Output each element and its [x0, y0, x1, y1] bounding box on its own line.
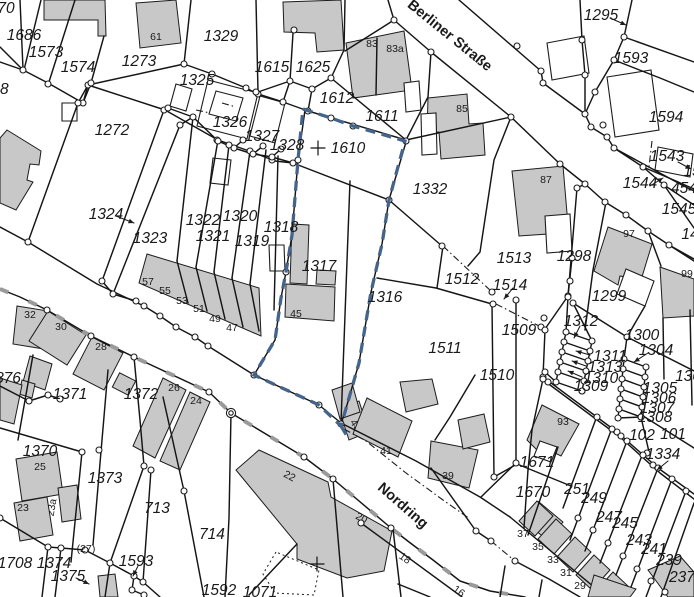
- svg-text:1708: 1708: [0, 555, 33, 572]
- svg-text:61: 61: [150, 31, 162, 43]
- svg-text:1686: 1686: [7, 27, 42, 44]
- svg-text:47: 47: [226, 322, 238, 334]
- svg-text:1334: 1334: [646, 446, 681, 463]
- svg-text:48: 48: [0, 81, 9, 98]
- svg-text:55: 55: [159, 285, 171, 297]
- svg-text:1324: 1324: [89, 206, 124, 223]
- svg-text:1323: 1323: [133, 230, 168, 247]
- svg-text:1295: 1295: [584, 7, 619, 24]
- svg-text:1592: 1592: [202, 582, 237, 597]
- svg-text:26: 26: [168, 382, 180, 394]
- svg-text:101: 101: [660, 426, 686, 443]
- svg-text:1574: 1574: [61, 59, 96, 76]
- svg-text:1545: 1545: [662, 201, 694, 218]
- svg-text:30: 30: [55, 321, 67, 333]
- svg-text:1510: 1510: [480, 367, 515, 384]
- svg-text:876: 876: [0, 370, 21, 387]
- svg-text:454: 454: [671, 180, 694, 197]
- svg-text:57: 57: [142, 276, 154, 288]
- svg-text:249: 249: [580, 490, 607, 507]
- svg-text:23: 23: [17, 502, 29, 514]
- svg-text:35: 35: [532, 541, 544, 553]
- svg-text:1272: 1272: [95, 122, 130, 139]
- svg-text:1625: 1625: [296, 59, 331, 76]
- svg-text:45: 45: [290, 308, 302, 320]
- svg-text:1593: 1593: [119, 553, 154, 570]
- svg-text:237: 237: [668, 569, 694, 586]
- svg-text:1318: 1318: [264, 219, 299, 236]
- svg-text:1375: 1375: [51, 568, 86, 585]
- svg-text:1615: 1615: [255, 59, 290, 76]
- svg-text:1328: 1328: [270, 137, 305, 154]
- svg-text:41: 41: [380, 445, 392, 457]
- svg-text:31: 31: [560, 567, 572, 579]
- svg-text:1322: 1322: [186, 212, 221, 229]
- svg-text:1332: 1332: [413, 181, 448, 198]
- svg-text:1509: 1509: [502, 322, 537, 339]
- svg-text:1373: 1373: [88, 470, 123, 487]
- svg-text:51: 51: [193, 303, 205, 315]
- svg-text:83: 83: [366, 38, 378, 50]
- svg-text:1372: 1372: [124, 386, 159, 403]
- svg-text:136: 136: [675, 368, 694, 385]
- svg-text:1671: 1671: [520, 454, 554, 471]
- svg-text:28: 28: [95, 341, 107, 353]
- svg-text:1573: 1573: [29, 44, 64, 61]
- svg-text:49: 49: [209, 313, 221, 325]
- svg-text:1611: 1611: [365, 108, 398, 125]
- svg-text:83a: 83a: [386, 43, 404, 55]
- svg-text:1371: 1371: [53, 386, 87, 403]
- svg-text:37: 37: [517, 528, 529, 540]
- svg-text:1325: 1325: [180, 72, 215, 89]
- svg-text:87: 87: [540, 174, 552, 186]
- svg-text:53: 53: [176, 295, 188, 307]
- svg-text:1544: 1544: [623, 175, 658, 192]
- svg-text:1071: 1071: [243, 584, 277, 597]
- svg-text:1514: 1514: [493, 277, 528, 294]
- svg-text:1273: 1273: [122, 53, 157, 70]
- svg-text:99: 99: [681, 268, 693, 280]
- svg-text:1512: 1512: [445, 271, 480, 288]
- svg-text:85: 85: [456, 103, 468, 115]
- svg-text:1298: 1298: [557, 248, 592, 265]
- svg-text:33: 33: [547, 554, 559, 566]
- svg-text:714: 714: [199, 526, 225, 543]
- svg-text:1321: 1321: [196, 228, 230, 245]
- svg-text:1612: 1612: [320, 90, 355, 107]
- svg-text:102: 102: [629, 427, 655, 444]
- svg-text:713: 713: [144, 500, 170, 517]
- svg-text:15: 15: [683, 163, 694, 180]
- svg-text:1316: 1316: [368, 289, 403, 306]
- svg-text:25: 25: [34, 461, 46, 473]
- svg-text:1670: 1670: [516, 484, 551, 501]
- svg-text:(27): (27): [77, 543, 96, 555]
- svg-text:70: 70: [0, 0, 15, 17]
- svg-text:29: 29: [574, 580, 586, 592]
- svg-text:1317: 1317: [302, 258, 338, 275]
- svg-text:245: 245: [611, 515, 638, 532]
- svg-text:32: 32: [24, 309, 36, 321]
- svg-text:93: 93: [557, 416, 569, 428]
- svg-text:1304: 1304: [639, 342, 674, 359]
- svg-text:97: 97: [623, 228, 635, 240]
- svg-text:1513: 1513: [497, 250, 532, 267]
- svg-text:1320: 1320: [223, 208, 258, 225]
- svg-text:1312: 1312: [564, 313, 599, 330]
- svg-text:1594: 1594: [649, 109, 684, 126]
- svg-text:239: 239: [655, 552, 682, 569]
- svg-text:24: 24: [190, 395, 202, 407]
- svg-text:1593: 1593: [614, 50, 649, 67]
- svg-text:1610: 1610: [331, 140, 366, 157]
- svg-text:1309: 1309: [574, 378, 609, 395]
- svg-text:1543: 1543: [650, 148, 685, 165]
- svg-text:1299: 1299: [592, 288, 627, 305]
- svg-text:1329: 1329: [204, 28, 239, 45]
- svg-text:1308: 1308: [638, 409, 673, 426]
- svg-text:14: 14: [681, 226, 694, 243]
- svg-text:1370: 1370: [23, 443, 58, 460]
- svg-text:1511: 1511: [428, 340, 461, 357]
- svg-text:1326: 1326: [213, 114, 248, 131]
